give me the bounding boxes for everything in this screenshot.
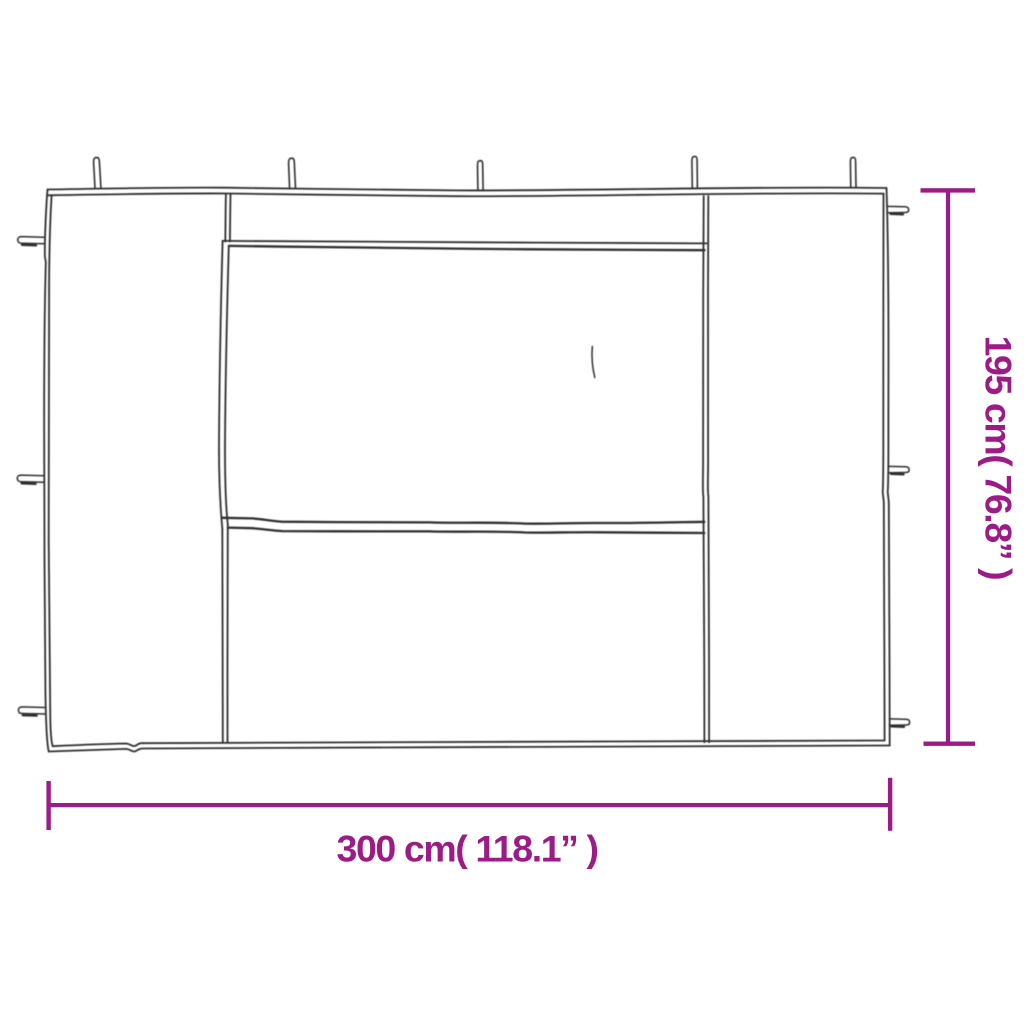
svg-text:300 cm( 118.1” ): 300 cm( 118.1” ) (337, 828, 598, 870)
svg-text:195 cm( 76.8” ): 195 cm( 76.8” ) (978, 336, 1020, 580)
